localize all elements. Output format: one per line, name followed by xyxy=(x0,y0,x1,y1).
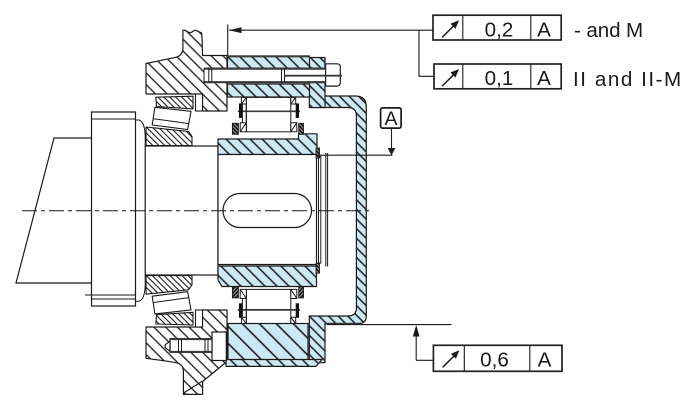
svg-text:0,2: 0,2 xyxy=(485,18,514,41)
svg-text:A: A xyxy=(537,18,551,41)
svg-text:II and II-M: II and II-M xyxy=(573,68,683,91)
svg-text:A: A xyxy=(384,108,397,130)
svg-text:A: A xyxy=(538,348,552,371)
svg-text:A: A xyxy=(537,67,551,90)
svg-text:0,6: 0,6 xyxy=(480,348,509,371)
svg-text:- and M: - and M xyxy=(574,19,643,42)
svg-text:0,1: 0,1 xyxy=(485,67,514,90)
